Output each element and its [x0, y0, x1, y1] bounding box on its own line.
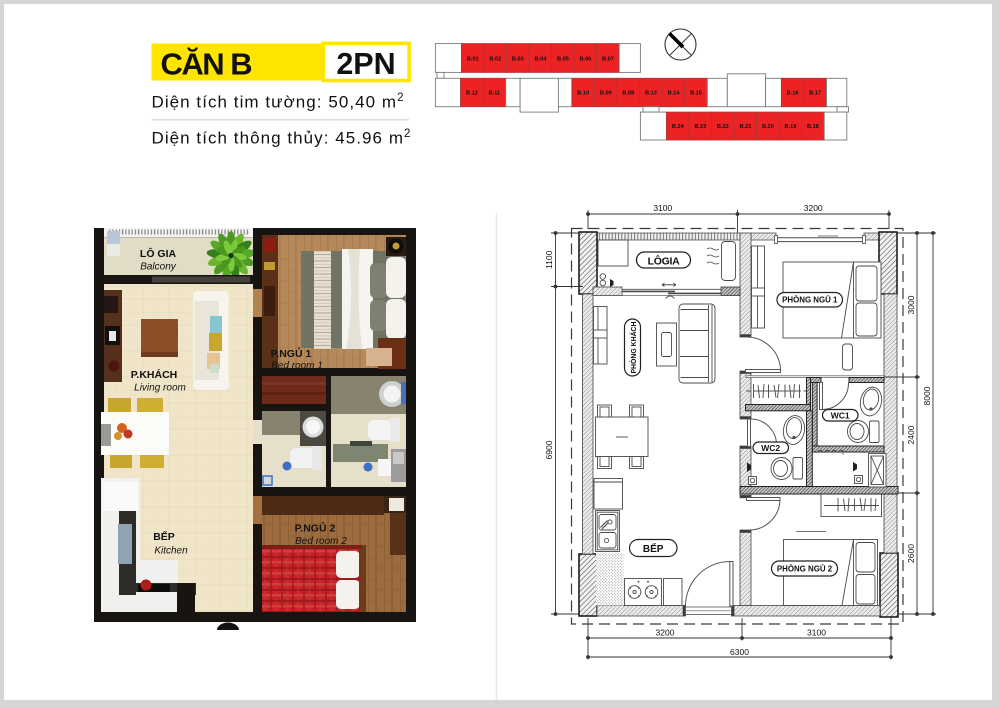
svg-text:1100: 1100 — [544, 250, 554, 269]
svg-text:B.21: B.21 — [739, 124, 751, 130]
svg-text:P.NGỦ 1: P.NGỦ 1 — [271, 347, 312, 360]
svg-text:Diện tích thông thủy: 45.96 m2: Diện tích thông thủy: 45.96 m2 — [152, 128, 412, 148]
svg-text:B.13: B.13 — [645, 91, 657, 97]
svg-text:3100: 3100 — [653, 203, 672, 213]
svg-text:B.10: B.10 — [577, 91, 589, 97]
svg-text:WC2: WC2 — [761, 443, 780, 453]
svg-text:B.20: B.20 — [762, 124, 774, 130]
svg-text:B.01: B.01 — [467, 57, 479, 63]
svg-text:3200: 3200 — [804, 203, 823, 213]
svg-text:B.19: B.19 — [784, 124, 796, 130]
svg-text:B.11: B.11 — [489, 91, 501, 97]
svg-text:B.16: B.16 — [787, 91, 799, 97]
svg-text:B.06: B.06 — [579, 57, 591, 63]
svg-text:CĂN B: CĂN B — [161, 47, 252, 82]
svg-text:Diện tích tim tường: 50,40 m2: Diện tích tim tường: 50,40 m2 — [152, 92, 405, 112]
svg-text:B.18: B.18 — [807, 124, 819, 130]
svg-text:B.23: B.23 — [694, 124, 706, 130]
svg-text:B.24: B.24 — [672, 124, 685, 130]
svg-text:LÔGIA: LÔGIA — [648, 255, 680, 268]
svg-text:B.07: B.07 — [602, 57, 614, 63]
svg-text:PHÒNG NGỦ 2: PHÒNG NGỦ 2 — [777, 565, 833, 574]
svg-text:LÔ GIA: LÔ GIA — [140, 247, 177, 260]
svg-text:2400: 2400 — [906, 425, 916, 444]
svg-text:Bed room 1: Bed room 1 — [271, 361, 323, 372]
svg-text:WC1: WC1 — [831, 410, 850, 420]
svg-text:PHÒNG KHÁCH: PHÒNG KHÁCH — [629, 321, 638, 373]
svg-text:PHÒNG NGỦ 1: PHÒNG NGỦ 1 — [782, 296, 838, 305]
svg-text:B.12: B.12 — [466, 91, 478, 97]
svg-text:3100: 3100 — [807, 628, 826, 638]
svg-text:B.22: B.22 — [717, 124, 729, 130]
svg-text:B.17: B.17 — [809, 91, 821, 97]
svg-text:6900: 6900 — [544, 440, 554, 459]
svg-text:3200: 3200 — [656, 628, 675, 638]
svg-text:P.KHÁCH: P.KHÁCH — [131, 368, 177, 381]
svg-text:B.14: B.14 — [668, 91, 681, 97]
svg-text:B.02: B.02 — [489, 57, 501, 63]
svg-text:BẾP: BẾP — [643, 542, 664, 555]
svg-text:B.04: B.04 — [534, 57, 547, 63]
svg-text:2600: 2600 — [906, 544, 916, 563]
svg-text:B.15: B.15 — [690, 91, 702, 97]
svg-text:6300: 6300 — [730, 647, 749, 657]
svg-text:2PN: 2PN — [336, 47, 395, 81]
svg-text:B.05: B.05 — [557, 57, 569, 63]
svg-text:B.09: B.09 — [600, 91, 612, 97]
svg-text:Living room: Living room — [134, 383, 186, 394]
svg-text:8000: 8000 — [922, 386, 932, 405]
svg-text:B.08: B.08 — [622, 91, 634, 97]
svg-text:3000: 3000 — [906, 295, 916, 314]
svg-text:Kitchen: Kitchen — [154, 546, 188, 557]
svg-text:BẾP: BẾP — [153, 530, 175, 543]
svg-text:P.NGỦ 2: P.NGỦ 2 — [295, 522, 336, 535]
svg-text:B.03: B.03 — [512, 57, 524, 63]
svg-text:Balcony: Balcony — [140, 262, 177, 273]
